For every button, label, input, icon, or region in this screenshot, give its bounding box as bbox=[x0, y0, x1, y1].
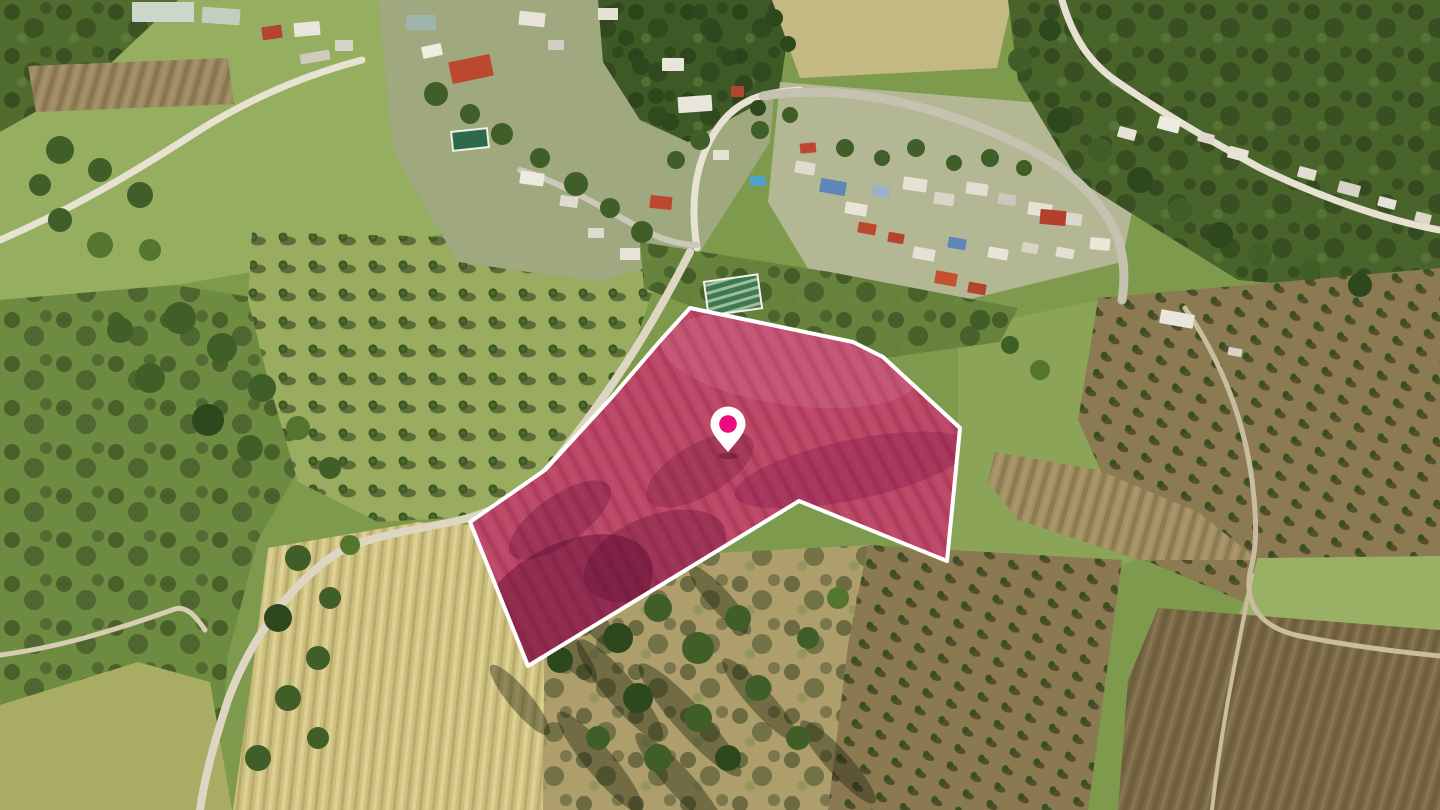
blue-pool bbox=[750, 176, 766, 186]
tree bbox=[48, 208, 72, 232]
tree bbox=[245, 745, 271, 771]
tree bbox=[690, 130, 710, 150]
building bbox=[1039, 209, 1066, 226]
tree bbox=[307, 727, 329, 749]
tree bbox=[340, 535, 360, 555]
tree bbox=[564, 172, 588, 196]
pin-dot bbox=[719, 415, 737, 433]
tree bbox=[765, 9, 783, 27]
tree bbox=[644, 744, 672, 772]
tree bbox=[661, 113, 679, 131]
building bbox=[335, 40, 353, 51]
tree bbox=[874, 150, 890, 166]
building bbox=[293, 21, 320, 37]
blue-pool-roof bbox=[750, 176, 766, 186]
tree bbox=[623, 683, 653, 713]
tree bbox=[275, 685, 301, 711]
tree bbox=[836, 139, 854, 157]
building bbox=[132, 2, 194, 22]
tree bbox=[248, 374, 276, 402]
building bbox=[261, 25, 283, 41]
tree bbox=[1299, 259, 1321, 281]
aerial-photo-canvas bbox=[0, 0, 1440, 810]
zone-khaki-field-top bbox=[772, 0, 1012, 78]
tree bbox=[600, 198, 620, 218]
tree bbox=[285, 545, 311, 571]
tree bbox=[603, 623, 633, 653]
tree bbox=[29, 174, 51, 196]
building bbox=[649, 195, 672, 210]
tree bbox=[618, 30, 634, 46]
tree bbox=[1127, 167, 1153, 193]
building bbox=[1090, 237, 1111, 251]
tree bbox=[530, 148, 550, 168]
zone-orchard-bottom-texture bbox=[828, 545, 1122, 810]
tree bbox=[692, 4, 708, 20]
tree bbox=[192, 404, 224, 436]
tree bbox=[207, 333, 237, 363]
tree bbox=[682, 632, 714, 664]
building bbox=[588, 228, 604, 238]
tree bbox=[1248, 243, 1272, 267]
tree bbox=[667, 151, 685, 169]
tree bbox=[827, 587, 849, 609]
striped-greenhouse bbox=[704, 274, 762, 315]
building bbox=[620, 248, 640, 260]
tree bbox=[424, 82, 448, 106]
tree bbox=[797, 627, 819, 649]
building bbox=[677, 95, 712, 113]
tree bbox=[750, 100, 766, 116]
building bbox=[713, 150, 729, 160]
tree bbox=[491, 123, 513, 145]
tree bbox=[139, 239, 161, 261]
building bbox=[800, 142, 817, 153]
building bbox=[598, 8, 618, 20]
tree bbox=[306, 646, 330, 670]
tree bbox=[1001, 336, 1019, 354]
tree bbox=[745, 675, 771, 701]
tree bbox=[725, 605, 751, 631]
green-pool bbox=[451, 128, 489, 151]
tree bbox=[264, 604, 292, 632]
tree bbox=[1039, 19, 1061, 41]
tree bbox=[684, 704, 712, 732]
tree bbox=[87, 232, 113, 258]
tree bbox=[751, 121, 769, 139]
building bbox=[662, 58, 684, 71]
tree bbox=[46, 136, 74, 164]
tree bbox=[907, 139, 925, 157]
tree bbox=[135, 363, 165, 393]
tree bbox=[1168, 198, 1192, 222]
building bbox=[518, 11, 545, 28]
tree bbox=[981, 149, 999, 167]
tree bbox=[237, 435, 263, 461]
tree bbox=[1348, 273, 1372, 297]
tree bbox=[1016, 160, 1032, 176]
tree bbox=[786, 726, 810, 750]
tree bbox=[127, 182, 153, 208]
tree bbox=[648, 88, 664, 104]
tree bbox=[946, 155, 962, 171]
tree bbox=[705, 25, 723, 43]
aerial-property-photo bbox=[0, 0, 1440, 810]
tree bbox=[88, 158, 112, 182]
tree bbox=[319, 457, 341, 479]
tree bbox=[460, 104, 480, 124]
zone-plough-bottomright-texture bbox=[1118, 608, 1440, 810]
tree bbox=[1008, 48, 1032, 72]
tree bbox=[319, 587, 341, 609]
tree bbox=[721, 50, 737, 66]
tree bbox=[715, 745, 741, 771]
tree bbox=[164, 302, 196, 334]
tree bbox=[1047, 107, 1073, 133]
tree bbox=[631, 221, 653, 243]
tree bbox=[644, 594, 672, 622]
tree bbox=[1207, 222, 1233, 248]
tree bbox=[286, 416, 310, 440]
tree bbox=[107, 317, 133, 343]
tree bbox=[586, 726, 610, 750]
building bbox=[406, 15, 436, 30]
green-pool-roof bbox=[451, 128, 489, 151]
tree bbox=[780, 36, 796, 52]
tree bbox=[782, 107, 798, 123]
building bbox=[201, 7, 240, 26]
zone-tilled-strip-texture bbox=[28, 58, 234, 112]
tree bbox=[1030, 360, 1050, 380]
tree bbox=[632, 57, 650, 75]
tree bbox=[1088, 138, 1112, 162]
building bbox=[548, 40, 564, 50]
building bbox=[731, 86, 744, 97]
pin-shadow bbox=[718, 453, 738, 459]
tree bbox=[970, 310, 990, 330]
